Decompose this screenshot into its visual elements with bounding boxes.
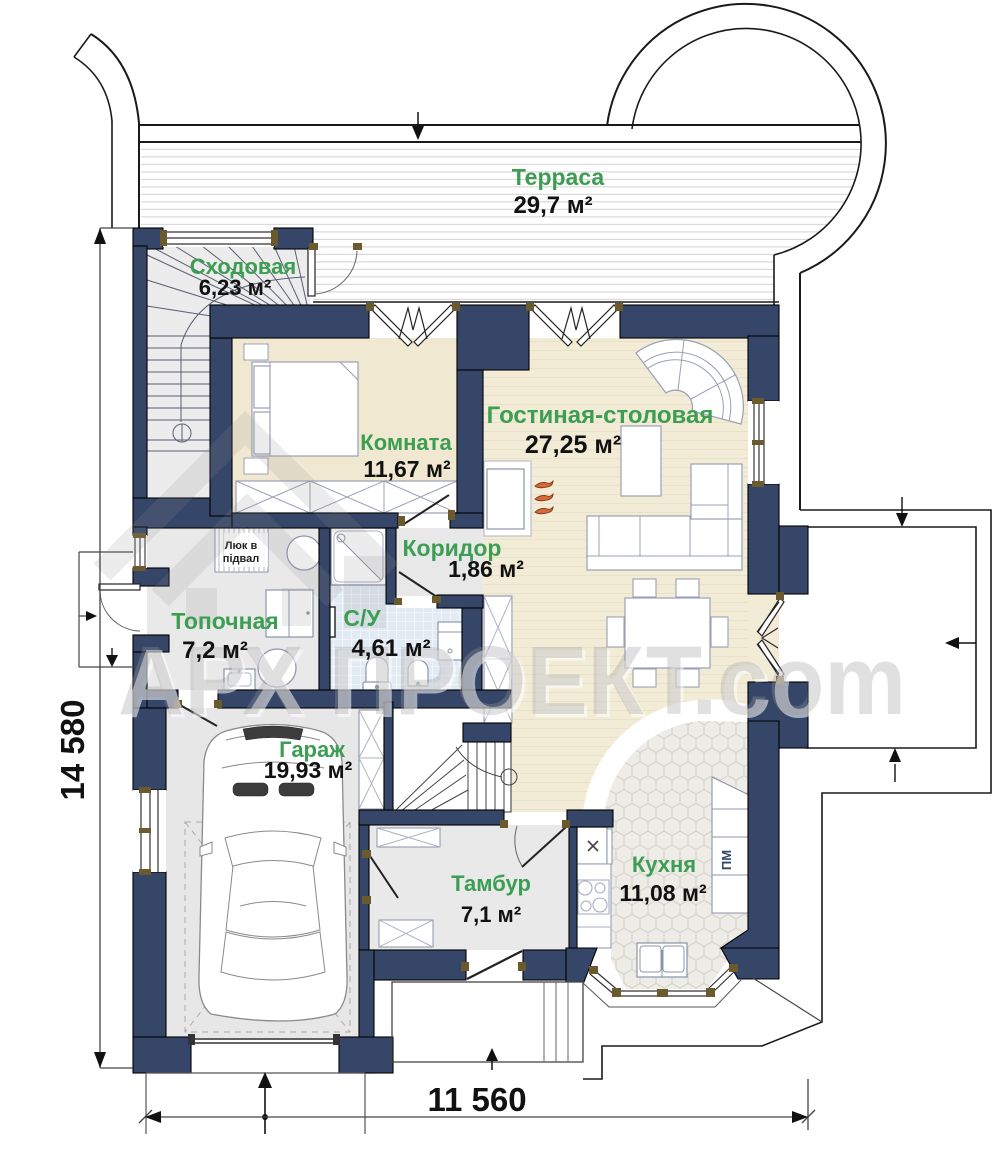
svg-text:7,2 м²: 7,2 м²	[182, 637, 248, 664]
svg-text:14 580: 14 580	[54, 700, 91, 801]
svg-text:підвал: підвал	[223, 553, 259, 565]
svg-text:Гостиная-столовая: Гостиная-столовая	[487, 402, 714, 429]
svg-text:Тамбур: Тамбур	[451, 871, 531, 896]
svg-text:11,67 м²: 11,67 м²	[363, 456, 451, 482]
svg-text:Терраса: Терраса	[512, 164, 605, 190]
svg-text:19,93 м²: 19,93 м²	[264, 757, 353, 783]
svg-text:6,23 м²: 6,23 м²	[199, 275, 272, 300]
svg-text:Кухня: Кухня	[632, 852, 696, 877]
svg-text:27,25 м²: 27,25 м²	[525, 431, 621, 459]
svg-text:11,08 м²: 11,08 м²	[619, 880, 707, 906]
svg-text:29,7 м²: 29,7 м²	[513, 192, 592, 219]
svg-text:ПМ: ПМ	[719, 850, 734, 870]
svg-text:11 560: 11 560	[427, 1081, 526, 1118]
svg-text:7,1 м²: 7,1 м²	[461, 902, 521, 927]
svg-text:Топочная: Топочная	[171, 608, 278, 634]
svg-text:1,86 м²: 1,86 м²	[448, 556, 524, 582]
svg-text:4,61 м²: 4,61 м²	[351, 635, 430, 662]
svg-text:С/У: С/У	[343, 605, 381, 631]
svg-text:Комната: Комната	[360, 430, 452, 455]
